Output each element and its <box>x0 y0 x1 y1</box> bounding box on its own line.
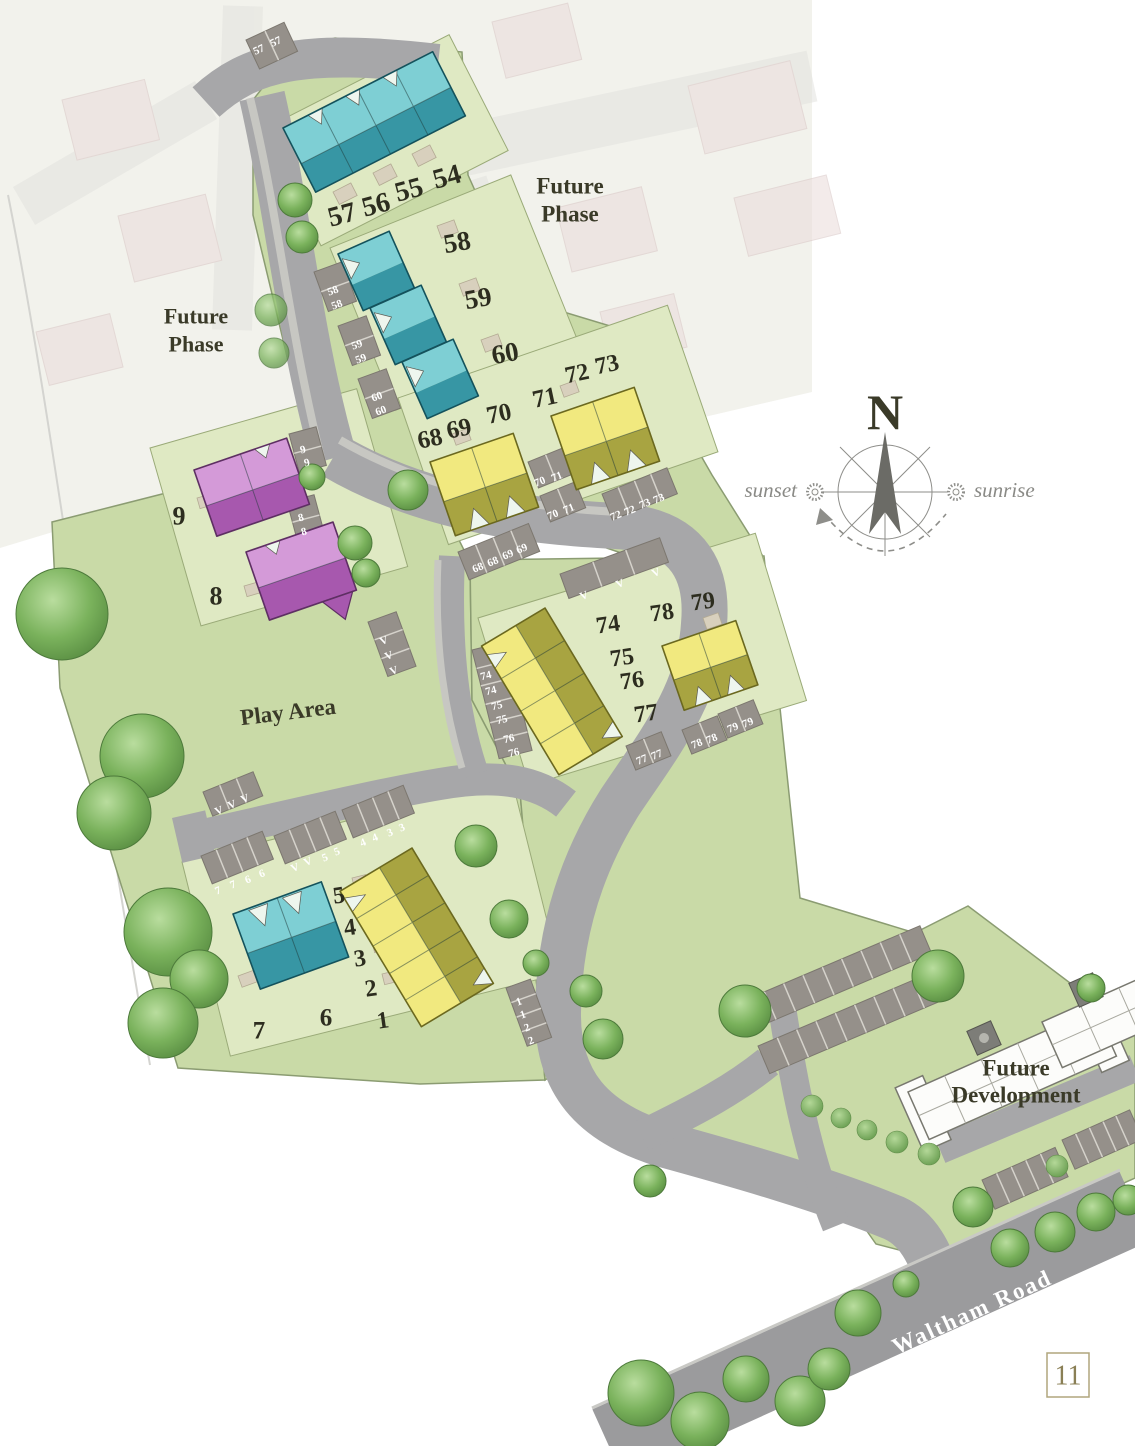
site-plan-page: 5455565758596068697071727374757677787998… <box>0 0 1135 1446</box>
plot-label-77: 77 <box>632 699 659 728</box>
tree-icon <box>128 988 198 1058</box>
tree-icon <box>801 1095 823 1117</box>
tree-icon <box>634 1165 666 1197</box>
tree-icon <box>255 294 287 326</box>
tree-icon <box>1035 1212 1075 1252</box>
tree-icon <box>808 1348 850 1390</box>
tree-icon <box>857 1120 877 1140</box>
plot-label-9: 9 <box>173 502 186 531</box>
tree-icon <box>388 470 428 510</box>
page-number: 11 <box>1055 1361 1082 1392</box>
tree-icon <box>16 568 108 660</box>
future-phase-label-left-line1: Future <box>164 304 229 329</box>
plot-label-74: 74 <box>594 610 621 639</box>
tree-icon <box>583 1019 623 1059</box>
tree-icon <box>259 338 289 368</box>
page-number-box: 11 <box>1047 1353 1089 1397</box>
tree-icon <box>286 221 318 253</box>
tree-icon <box>991 1229 1029 1267</box>
tree-icon <box>912 950 964 1002</box>
compass-north-label: N <box>867 384 903 440</box>
tree-icon <box>831 1108 851 1128</box>
tree-icon <box>455 825 497 867</box>
plot-label-59: 59 <box>462 281 494 315</box>
future-development-label-line1: Future <box>982 1056 1049 1081</box>
tree-icon <box>918 1143 940 1165</box>
future-development-label-line2: Development <box>951 1083 1080 1108</box>
plot-label-76: 76 <box>618 666 645 695</box>
future-phase-label-left-line2: Phase <box>169 332 224 357</box>
tree-icon <box>490 900 528 938</box>
sunset-label: sunset <box>745 478 799 502</box>
plot-label-78: 78 <box>648 598 675 627</box>
plot-label-6: 6 <box>320 1005 333 1032</box>
tree-icon <box>1046 1155 1068 1177</box>
plot-label-7: 7 <box>253 1018 266 1045</box>
tree-icon <box>1077 974 1105 1002</box>
tree-icon <box>352 559 380 587</box>
tree-icon <box>953 1187 993 1227</box>
future-phase-label-right-line2: Phase <box>541 202 599 227</box>
tree-icon <box>570 975 602 1007</box>
tree-icon <box>77 776 151 850</box>
tree-icon <box>723 1356 769 1402</box>
tree-icon <box>608 1360 674 1426</box>
tree-icon <box>1077 1193 1115 1231</box>
tree-icon <box>278 183 312 217</box>
plot-label-60: 60 <box>489 336 521 370</box>
plot-label-79: 79 <box>689 587 716 616</box>
plot-label-8: 8 <box>210 582 223 611</box>
tree-icon <box>299 464 325 490</box>
tree-icon <box>671 1392 729 1446</box>
tree-icon <box>886 1131 908 1153</box>
future-phase-label-right-line1: Future <box>536 174 603 199</box>
site-plan-drawing: 5455565758596068697071727374757677787998… <box>0 0 1135 1446</box>
tree-icon <box>338 526 372 560</box>
plot-label-58: 58 <box>441 225 473 259</box>
tree-icon <box>835 1290 881 1336</box>
tree-icon <box>719 985 771 1037</box>
sunrise-label: sunrise <box>974 478 1035 502</box>
tree-icon <box>523 950 549 976</box>
tree-icon <box>893 1271 919 1297</box>
